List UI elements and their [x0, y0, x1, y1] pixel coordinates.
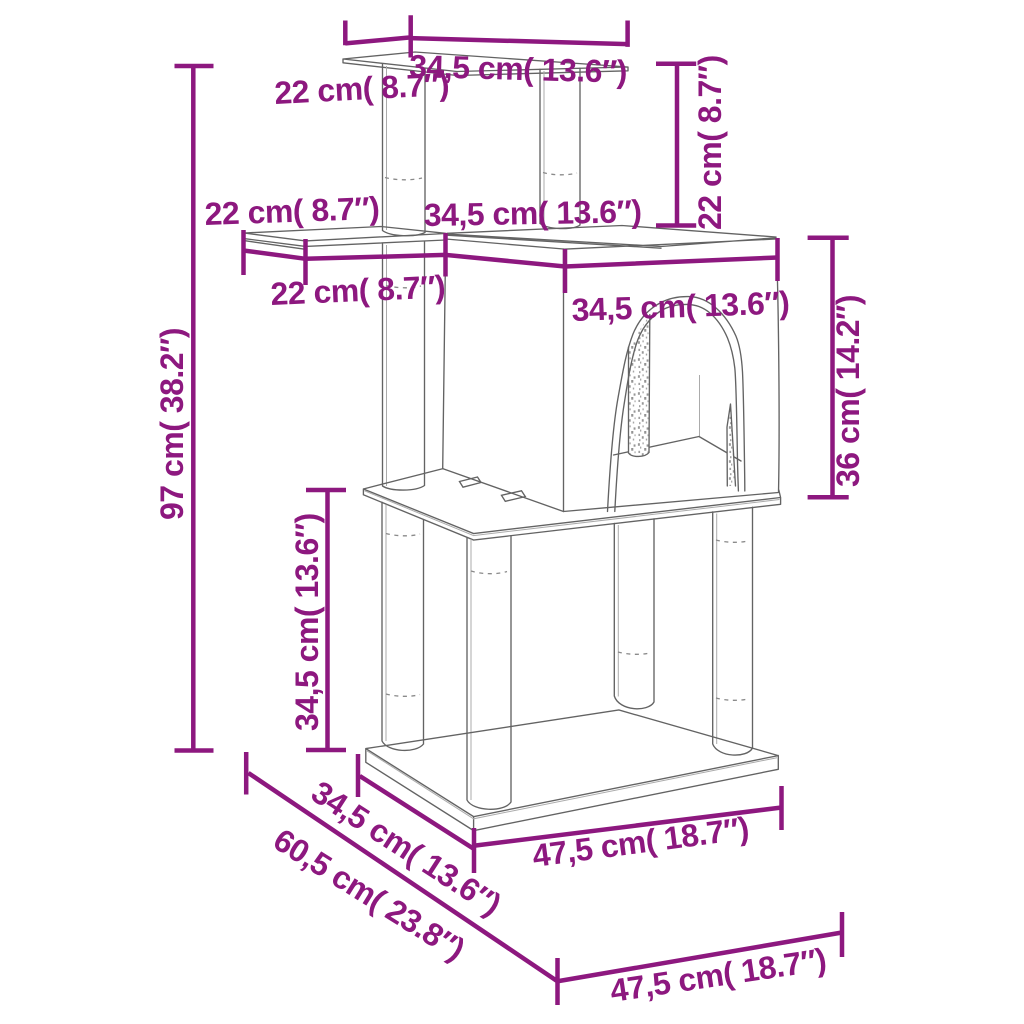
- svg-text:34,5 cm( 13.6″): 34,5 cm( 13.6″): [423, 193, 641, 233]
- svg-text:34,5 cm( 13.6″): 34,5 cm( 13.6″): [409, 48, 628, 90]
- svg-text:22 cm( 8.7″): 22 cm( 8.7″): [270, 268, 446, 312]
- svg-text:34,5 cm( 13.6″): 34,5 cm( 13.6″): [289, 513, 325, 731]
- svg-text:34,5 cm( 13.6″): 34,5 cm( 13.6″): [571, 284, 790, 328]
- svg-text:36 cm( 14.2″): 36 cm( 14.2″): [830, 295, 866, 487]
- svg-text:22 cm( 8.7″): 22 cm( 8.7″): [204, 190, 380, 232]
- svg-text:97 cm( 38.2″): 97 cm( 38.2″): [154, 328, 190, 520]
- svg-text:22 cm( 8.7″): 22 cm( 8.7″): [692, 55, 728, 230]
